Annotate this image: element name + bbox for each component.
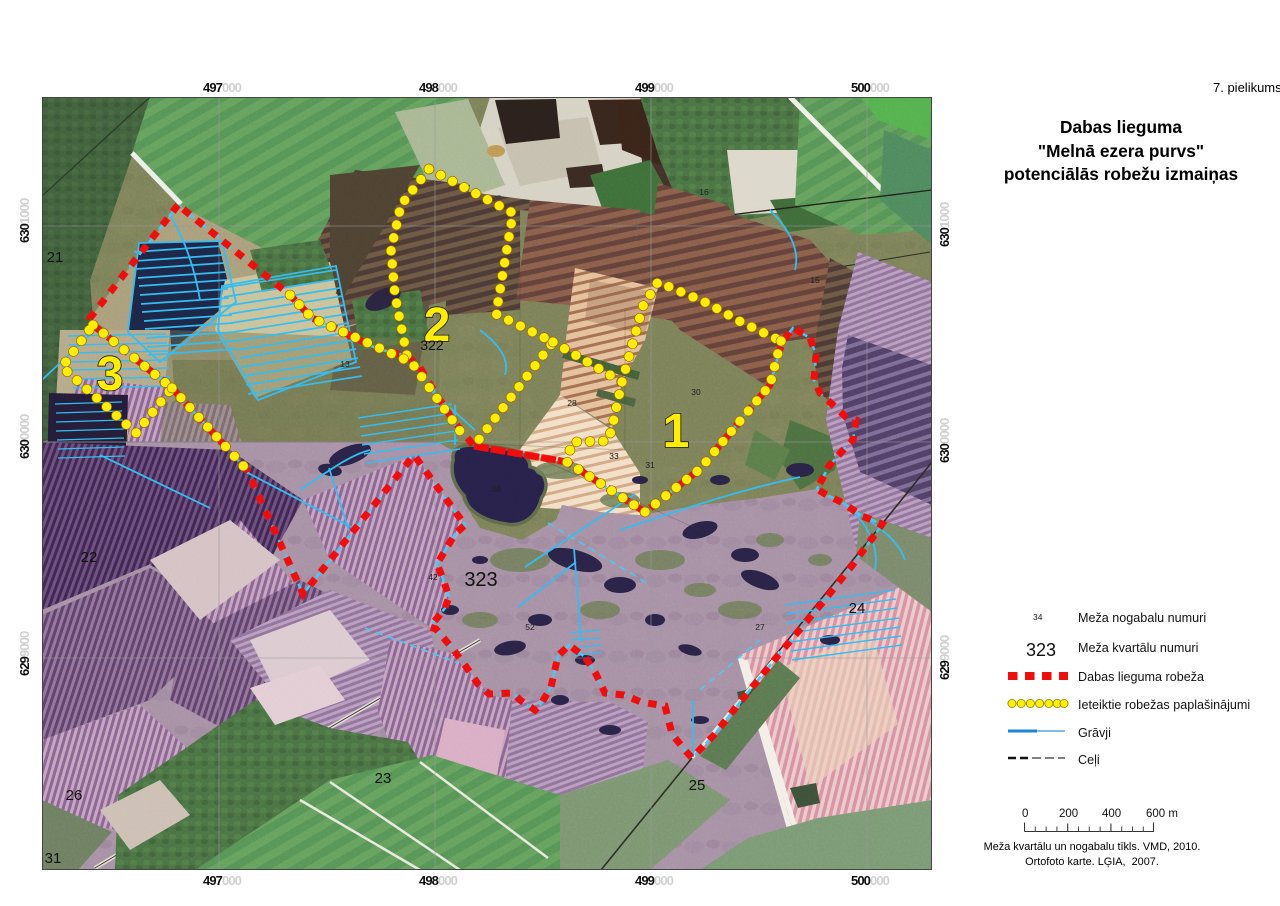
svg-text:323: 323 <box>464 569 497 591</box>
svg-text:42: 42 <box>428 572 438 582</box>
svg-text:31: 31 <box>645 460 655 470</box>
svg-text:33: 33 <box>609 451 619 461</box>
svg-text:22: 22 <box>81 549 98 566</box>
svg-text:23: 23 <box>375 770 392 787</box>
svg-text:34: 34 <box>491 484 501 494</box>
svg-text:26: 26 <box>66 787 83 804</box>
svg-text:25: 25 <box>689 777 706 794</box>
svg-text:322: 322 <box>420 337 444 353</box>
svg-text:4: 4 <box>336 287 341 297</box>
svg-text:15: 15 <box>810 275 820 285</box>
svg-text:16: 16 <box>699 187 709 197</box>
svg-text:3: 3 <box>97 348 124 401</box>
svg-text:52: 52 <box>525 622 535 632</box>
svg-text:13: 13 <box>340 359 350 369</box>
svg-text:1: 1 <box>663 405 690 458</box>
svg-text:30: 30 <box>691 387 701 397</box>
svg-text:21: 21 <box>47 249 64 266</box>
svg-text:28: 28 <box>567 398 577 408</box>
svg-text:31: 31 <box>45 850 62 867</box>
svg-text:24: 24 <box>849 600 866 617</box>
svg-text:27: 27 <box>755 622 765 632</box>
